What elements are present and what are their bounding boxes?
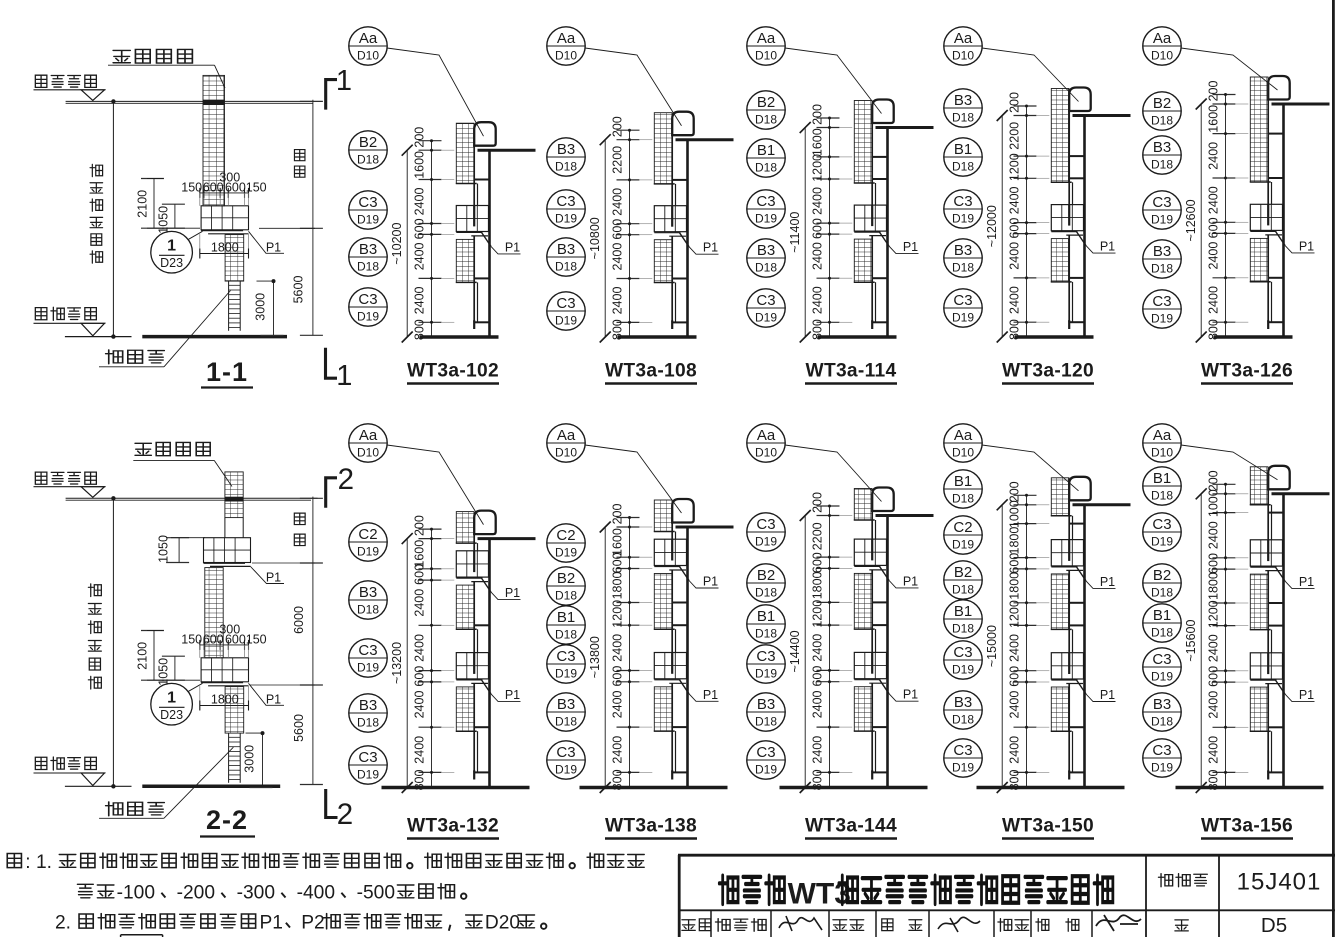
svg-text:200: 200: [811, 104, 825, 125]
svg-text:D19: D19: [952, 663, 974, 677]
svg-text:P1: P1: [266, 240, 281, 254]
svg-text:-400: -400: [297, 883, 335, 904]
svg-text:: 1.: : 1.: [25, 852, 52, 873]
svg-text:D19: D19: [555, 763, 577, 777]
svg-text:2400: 2400: [811, 187, 825, 215]
svg-text:D19: D19: [755, 212, 777, 226]
svg-text:1200: 1200: [1008, 600, 1022, 628]
svg-text:1000: 1000: [1207, 489, 1221, 517]
svg-text:B1: B1: [557, 609, 575, 626]
svg-text:2400: 2400: [811, 736, 825, 764]
svg-text:200: 200: [1207, 81, 1221, 102]
svg-text:5600: 5600: [291, 276, 305, 304]
svg-text:D18: D18: [555, 715, 577, 729]
svg-text:D19: D19: [555, 314, 577, 328]
svg-text:D10: D10: [755, 49, 777, 63]
svg-text:200: 200: [1207, 470, 1221, 491]
svg-text:C3: C3: [358, 194, 377, 211]
svg-text:2400: 2400: [611, 287, 625, 315]
svg-text:B3: B3: [557, 241, 575, 258]
svg-text:2400: 2400: [1207, 142, 1221, 170]
svg-text:1200: 1200: [1008, 153, 1022, 181]
svg-text:D18: D18: [1151, 626, 1173, 640]
svg-text:D19: D19: [1151, 761, 1173, 775]
svg-text:C3: C3: [556, 295, 575, 312]
svg-text:B2: B2: [359, 134, 377, 151]
svg-text:1600: 1600: [1207, 105, 1221, 133]
svg-text:D19: D19: [357, 213, 379, 227]
svg-text:WT3a-156: WT3a-156: [1201, 816, 1293, 837]
svg-text:WT3a-144: WT3a-144: [805, 816, 897, 837]
svg-text:600: 600: [811, 666, 825, 687]
svg-text:P1: P1: [1299, 239, 1314, 253]
svg-text:B3: B3: [1153, 243, 1171, 260]
svg-text:2100: 2100: [136, 190, 150, 218]
svg-text:C3: C3: [756, 744, 775, 761]
svg-text:WT3a-150: WT3a-150: [1002, 816, 1094, 837]
svg-text:C3: C3: [756, 648, 775, 665]
svg-text:Aa: Aa: [359, 427, 378, 444]
svg-text:2400: 2400: [413, 286, 427, 314]
svg-text:1200: 1200: [1207, 600, 1221, 628]
svg-text:P1: P1: [260, 913, 283, 934]
svg-text:D18: D18: [555, 628, 577, 642]
svg-text:200: 200: [611, 504, 625, 525]
svg-text:2: 2: [338, 463, 354, 496]
svg-text:2400: 2400: [413, 736, 427, 764]
svg-text:D18: D18: [952, 160, 974, 174]
svg-text:Aa: Aa: [954, 30, 973, 47]
svg-text:C3: C3: [1152, 194, 1171, 211]
svg-text:D10: D10: [952, 446, 974, 460]
svg-text:200: 200: [1008, 92, 1022, 113]
svg-text:-100: -100: [117, 883, 155, 904]
svg-text:1600: 1600: [811, 128, 825, 156]
svg-text:D18: D18: [1151, 489, 1173, 503]
svg-text:D18: D18: [952, 713, 974, 727]
svg-text:D10: D10: [755, 446, 777, 460]
svg-text:D10: D10: [1151, 446, 1173, 460]
svg-text:2400: 2400: [1207, 691, 1221, 719]
svg-text:1200: 1200: [611, 600, 625, 628]
svg-text:1600: 1600: [611, 528, 625, 556]
svg-text:600: 600: [811, 552, 825, 573]
svg-text:200: 200: [413, 127, 427, 148]
svg-text:D18: D18: [357, 603, 379, 617]
svg-text:600: 600: [611, 219, 625, 240]
svg-text:C3: C3: [953, 292, 972, 309]
svg-text:2100: 2100: [136, 642, 150, 670]
svg-text:D18: D18: [1151, 586, 1173, 600]
svg-text:D18: D18: [1151, 114, 1173, 128]
svg-text:2400: 2400: [611, 690, 625, 718]
svg-text:P1: P1: [703, 688, 718, 702]
svg-text:2400: 2400: [611, 634, 625, 662]
svg-text:D18: D18: [555, 260, 577, 274]
svg-text:P1: P1: [505, 586, 520, 600]
svg-text:D19: D19: [952, 311, 974, 325]
svg-text:B1: B1: [954, 473, 972, 490]
svg-text:D18: D18: [755, 715, 777, 729]
svg-text:D18: D18: [555, 160, 577, 174]
svg-text:D19: D19: [952, 212, 974, 226]
svg-text:B2: B2: [557, 570, 575, 587]
svg-text:2400: 2400: [611, 188, 625, 216]
svg-text:B3: B3: [359, 697, 377, 714]
svg-text:2400: 2400: [1008, 634, 1022, 662]
svg-text:~10200: ~10200: [390, 223, 404, 265]
svg-text:D19: D19: [357, 661, 379, 675]
svg-text:D19: D19: [1151, 213, 1173, 227]
svg-text:600: 600: [413, 564, 427, 585]
svg-text:D19: D19: [1151, 670, 1173, 684]
svg-text:~15600: ~15600: [1184, 620, 1198, 662]
svg-text:Aa: Aa: [557, 427, 576, 444]
svg-text:D10: D10: [952, 49, 974, 63]
svg-text:1050: 1050: [157, 658, 171, 686]
svg-text:1800: 1800: [1008, 527, 1022, 555]
svg-text:Aa: Aa: [359, 30, 378, 47]
svg-text:200: 200: [413, 515, 427, 536]
svg-text:C3: C3: [1152, 742, 1171, 759]
svg-text:600: 600: [1008, 666, 1022, 687]
svg-text:B3: B3: [557, 696, 575, 713]
svg-text:6000: 6000: [292, 606, 306, 634]
svg-text:2: 2: [337, 798, 353, 831]
svg-text:2400: 2400: [1207, 736, 1221, 764]
svg-text:600: 600: [1008, 553, 1022, 574]
svg-text:P1: P1: [505, 240, 520, 254]
svg-text:B3: B3: [557, 141, 575, 158]
svg-text:~15000: ~15000: [985, 625, 999, 667]
svg-text:2200: 2200: [811, 522, 825, 550]
svg-text:D19: D19: [555, 212, 577, 226]
svg-text:Aa: Aa: [757, 427, 776, 444]
svg-text:WT3a-126: WT3a-126: [1201, 361, 1293, 382]
svg-text:3000: 3000: [243, 745, 257, 773]
svg-text:C3: C3: [358, 642, 377, 659]
svg-text:C3: C3: [1152, 651, 1171, 668]
svg-text:1-1: 1-1: [206, 357, 248, 387]
svg-text:5600: 5600: [292, 714, 306, 742]
svg-text:D18: D18: [1151, 715, 1173, 729]
svg-text:2400: 2400: [1207, 286, 1221, 314]
svg-text:600: 600: [811, 218, 825, 239]
svg-text:1: 1: [336, 360, 352, 392]
svg-text:B3: B3: [359, 584, 377, 601]
svg-text:Aa: Aa: [954, 427, 973, 444]
svg-text:Aa: Aa: [1153, 30, 1172, 47]
svg-text:B2: B2: [757, 567, 775, 584]
svg-text:B2: B2: [757, 94, 775, 111]
svg-text:C2: C2: [953, 519, 972, 536]
svg-text:WT3a-114: WT3a-114: [806, 361, 897, 382]
svg-text:C3: C3: [756, 193, 775, 210]
svg-text:Aa: Aa: [757, 30, 776, 47]
svg-text:P1: P1: [1299, 575, 1314, 589]
svg-text:D10: D10: [555, 446, 577, 460]
svg-text:D19: D19: [555, 546, 577, 560]
svg-text:P1: P1: [903, 688, 918, 702]
svg-text:2200: 2200: [611, 146, 625, 174]
svg-text:D19: D19: [555, 667, 577, 681]
svg-text:P1: P1: [1100, 688, 1115, 702]
svg-text:150: 150: [181, 633, 202, 647]
svg-text:D18: D18: [755, 161, 777, 175]
svg-text:200: 200: [1008, 481, 1022, 502]
svg-text:600: 600: [611, 666, 625, 687]
svg-text:D18: D18: [952, 583, 974, 597]
svg-text:C3: C3: [953, 193, 972, 210]
svg-text:D18: D18: [357, 153, 379, 167]
svg-text:2400: 2400: [413, 691, 427, 719]
svg-text:D18: D18: [1151, 262, 1173, 276]
svg-text:1: 1: [167, 689, 176, 706]
svg-text:2400: 2400: [413, 242, 427, 270]
svg-text:D19: D19: [952, 538, 974, 552]
svg-text:D10: D10: [555, 49, 577, 63]
svg-text:2400: 2400: [413, 589, 427, 617]
svg-text:D19: D19: [755, 763, 777, 777]
svg-text:1800: 1800: [1008, 572, 1022, 600]
svg-text:P1: P1: [1299, 688, 1314, 702]
svg-text:2400: 2400: [1008, 286, 1022, 314]
svg-text:1: 1: [167, 237, 176, 254]
svg-text:C3: C3: [1152, 293, 1171, 310]
svg-text:2400: 2400: [1008, 242, 1022, 270]
svg-text:2400: 2400: [413, 188, 427, 216]
svg-text:D18: D18: [952, 622, 974, 636]
svg-text:D10: D10: [357, 446, 379, 460]
svg-text:B3: B3: [954, 92, 972, 109]
svg-text:600: 600: [611, 552, 625, 573]
svg-text:-500: -500: [357, 883, 395, 904]
svg-text:2400: 2400: [1008, 736, 1022, 764]
svg-text:~14400: ~14400: [788, 630, 802, 672]
svg-text:600: 600: [413, 218, 427, 239]
svg-text:D19: D19: [755, 311, 777, 325]
svg-text:B3: B3: [954, 694, 972, 711]
svg-text:~10800: ~10800: [588, 217, 602, 259]
svg-text:B1: B1: [954, 603, 972, 620]
svg-text:Aa: Aa: [1153, 427, 1172, 444]
svg-text:C2: C2: [358, 526, 377, 543]
svg-text:C2: C2: [556, 527, 575, 544]
svg-text:D18: D18: [755, 113, 777, 127]
svg-text:D10: D10: [1151, 49, 1173, 63]
svg-text:1800: 1800: [1207, 572, 1221, 600]
svg-text:C3: C3: [358, 749, 377, 766]
svg-text:C3: C3: [556, 648, 575, 665]
svg-text:C3: C3: [953, 742, 972, 759]
svg-text:B2: B2: [1153, 95, 1171, 112]
svg-text:C3: C3: [756, 516, 775, 533]
svg-text:D19: D19: [755, 535, 777, 549]
svg-text:1: 1: [336, 65, 352, 97]
svg-text:P1: P1: [703, 241, 718, 255]
svg-text:D19: D19: [1151, 312, 1173, 326]
svg-text:D18: D18: [755, 586, 777, 600]
svg-text:D19: D19: [1151, 535, 1173, 549]
svg-text:C3: C3: [1152, 516, 1171, 533]
svg-text:D18: D18: [755, 261, 777, 275]
svg-text:P1: P1: [903, 240, 918, 254]
svg-text:600: 600: [413, 666, 427, 687]
svg-text:WT3a-102: WT3a-102: [407, 361, 499, 382]
svg-text:B1: B1: [757, 608, 775, 625]
svg-text:P2: P2: [301, 913, 324, 934]
svg-text:B3: B3: [757, 696, 775, 713]
svg-text:2400: 2400: [1008, 186, 1022, 214]
svg-text:1800: 1800: [611, 572, 625, 600]
svg-text:1000: 1000: [1008, 500, 1022, 528]
svg-text:D18: D18: [357, 260, 379, 274]
svg-text:2400: 2400: [413, 634, 427, 662]
svg-text:2.: 2.: [55, 913, 71, 934]
svg-text:D18: D18: [1151, 158, 1173, 172]
svg-text:B1: B1: [757, 142, 775, 159]
svg-text:B2: B2: [954, 564, 972, 581]
svg-text:150: 150: [181, 181, 202, 195]
svg-text:1800: 1800: [811, 571, 825, 599]
svg-text:B3: B3: [1153, 139, 1171, 156]
svg-text:200: 200: [611, 116, 625, 137]
svg-text:2400: 2400: [1008, 691, 1022, 719]
svg-text:D18: D18: [357, 716, 379, 730]
svg-text:1200: 1200: [811, 600, 825, 628]
svg-text:D19: D19: [357, 310, 379, 324]
svg-text:~13200: ~13200: [390, 642, 404, 684]
svg-text:WT3a-120: WT3a-120: [1002, 361, 1094, 382]
svg-text:D19: D19: [952, 761, 974, 775]
svg-text:1050: 1050: [157, 206, 171, 234]
svg-text:B3: B3: [1153, 696, 1171, 713]
svg-text:1050: 1050: [156, 535, 170, 563]
svg-text:-200: -200: [177, 883, 215, 904]
svg-text:WT3a-132: WT3a-132: [407, 816, 499, 837]
svg-text:2400: 2400: [1207, 242, 1221, 270]
svg-text:B3: B3: [757, 242, 775, 259]
svg-text:P1: P1: [505, 688, 520, 702]
svg-text:~13800: ~13800: [588, 636, 602, 678]
svg-text:D19: D19: [755, 667, 777, 681]
svg-text:D10: D10: [357, 49, 379, 63]
svg-text:WT3a-108: WT3a-108: [605, 361, 697, 382]
svg-text:C3: C3: [556, 193, 575, 210]
svg-text:P1: P1: [1100, 575, 1115, 589]
svg-text:200: 200: [811, 492, 825, 513]
svg-text:600: 600: [1008, 218, 1022, 239]
svg-text:1600: 1600: [413, 540, 427, 568]
svg-text:B1: B1: [1153, 470, 1171, 487]
svg-text:B2: B2: [1153, 567, 1171, 584]
svg-text:P1: P1: [266, 692, 281, 706]
svg-text:C3: C3: [756, 292, 775, 309]
svg-text:1200: 1200: [811, 154, 825, 182]
svg-text:2400: 2400: [611, 243, 625, 271]
svg-text:2400: 2400: [811, 242, 825, 270]
svg-text:P1: P1: [703, 575, 718, 589]
svg-text:D18: D18: [952, 492, 974, 506]
svg-text:D18: D18: [755, 627, 777, 641]
svg-text:P1: P1: [266, 571, 281, 585]
svg-text:P1: P1: [1100, 240, 1115, 254]
svg-text:600: 600: [1207, 553, 1221, 574]
svg-text:2400: 2400: [1207, 186, 1221, 214]
svg-text:D18: D18: [555, 589, 577, 603]
svg-text:600: 600: [1207, 217, 1221, 238]
svg-text:2400: 2400: [811, 690, 825, 718]
svg-text:D20: D20: [485, 913, 520, 934]
svg-text:D19: D19: [357, 545, 379, 559]
svg-text:C3: C3: [953, 644, 972, 661]
svg-text:D5: D5: [1261, 914, 1287, 937]
svg-text:P1: P1: [903, 574, 918, 588]
svg-text:2200: 2200: [1008, 122, 1022, 150]
svg-text:B3: B3: [954, 242, 972, 259]
svg-text:2400: 2400: [811, 286, 825, 314]
svg-text:D18: D18: [952, 111, 974, 125]
svg-text:2400: 2400: [1207, 634, 1221, 662]
svg-text:C3: C3: [358, 291, 377, 308]
svg-text:D19: D19: [357, 768, 379, 782]
svg-text:-300: -300: [237, 883, 275, 904]
svg-text:2400: 2400: [1207, 521, 1221, 549]
svg-text:D23: D23: [160, 708, 183, 722]
svg-text:Aa: Aa: [557, 30, 576, 47]
svg-text:3000: 3000: [254, 293, 268, 321]
svg-text:B1: B1: [1153, 607, 1171, 624]
svg-text:2-2: 2-2: [206, 805, 248, 835]
svg-text:~11400: ~11400: [788, 212, 802, 253]
svg-text:C3: C3: [556, 744, 575, 761]
svg-text:~12600: ~12600: [1184, 199, 1198, 241]
svg-text:B3: B3: [359, 241, 377, 258]
svg-text:D23: D23: [160, 256, 183, 270]
svg-text:2400: 2400: [811, 634, 825, 662]
svg-text:B1: B1: [954, 141, 972, 158]
svg-text:~12000: ~12000: [985, 205, 999, 247]
svg-text:600: 600: [1207, 666, 1221, 687]
svg-text:D18: D18: [952, 261, 974, 275]
svg-text:15J401: 15J401: [1237, 869, 1322, 896]
svg-text:WT3a-138: WT3a-138: [605, 816, 697, 837]
svg-text:1600: 1600: [413, 151, 427, 179]
svg-text:2400: 2400: [611, 736, 625, 764]
